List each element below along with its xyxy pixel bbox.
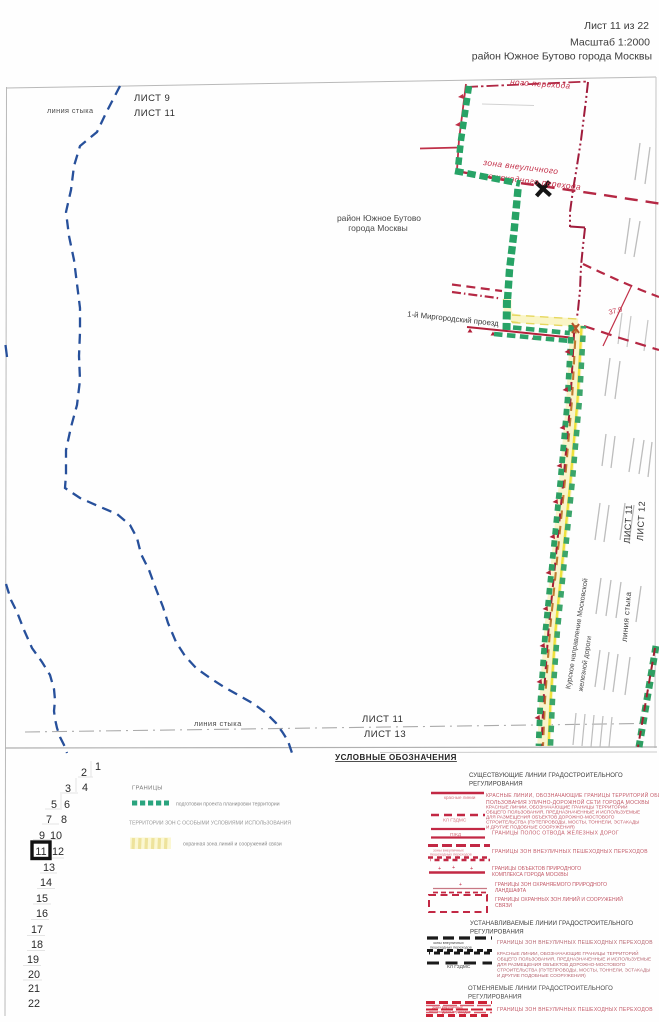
- svg-text:19: 19: [27, 954, 39, 966]
- svg-text:13: 13: [43, 862, 55, 874]
- svg-text:+: +: [459, 882, 462, 888]
- svg-text:9: 9: [39, 830, 45, 842]
- svg-text:4: 4: [82, 782, 88, 794]
- svg-text:ЛАНДШАФТА: ЛАНДШАФТА: [495, 888, 527, 894]
- svg-text:+: +: [438, 866, 441, 872]
- svg-text:КЛ ГЗДМС: КЛ ГЗДМС: [443, 818, 467, 824]
- svg-text:СВЯЗИ: СВЯЗИ: [495, 903, 512, 909]
- svg-text:20: 20: [28, 969, 40, 981]
- svg-text:22: 22: [28, 998, 40, 1010]
- svg-text:КРАСНЫЕ ЛИНИИ, ОБОЗНАЧАЮЩИЕ Г: КРАСНЫЕ ЛИНИИ, ОБОЗНАЧАЮЩИЕ ГРАНИЦЫ ТЕРР…: [486, 803, 628, 810]
- svg-text:ЛИСТ 11: ЛИСТ 11: [362, 714, 403, 725]
- svg-text:5: 5: [51, 799, 57, 811]
- svg-text:УСЛОВНЫЕ ОБОЗНАЧЕНИЯ: УСЛОВНЫЕ ОБОЗНАЧЕНИЯ: [335, 753, 457, 762]
- svg-text:ГРАНИЦЫ ОХРАННЫХ ЗОН ЛИНИЙ И С: ГРАНИЦЫ ОХРАННЫХ ЗОН ЛИНИЙ И СООРУЖЕНИЙ: [495, 895, 623, 903]
- svg-text:ОТМЕНЯЕМЫЕ ЛИНИИ ГРАДОСТРОИТЕ: ОТМЕНЯЕМЫЕ ЛИНИИ ГРАДОСТРОИТЕЛЬНОГО: [468, 986, 613, 992]
- svg-text:16: 16: [36, 908, 48, 920]
- svg-text:1: 1: [95, 761, 101, 773]
- svg-text:И ДРУГИЕ ПОДОБНЫЕ СООРУЖЕНИЯ: И ДРУГИЕ ПОДОБНЫЕ СООРУЖЕНИЯ): [497, 973, 586, 978]
- svg-text:+: +: [452, 865, 455, 871]
- svg-text:ГРАНИЦЫ: ГРАНИЦЫ: [132, 786, 163, 792]
- svg-text:ЛИСТ 13: ЛИСТ 13: [364, 729, 406, 740]
- svg-text:ГРАНИЦЫ ПОЛОС ОТВОДА ЖЕЛЕЗНЫ: ГРАНИЦЫ ПОЛОС ОТВОДА ЖЕЛЕЗНЫХ ДОРОГ: [492, 831, 619, 837]
- svg-text:7: 7: [46, 814, 52, 826]
- svg-text:14: 14: [40, 877, 52, 889]
- svg-text:Лист 11 из 22: Лист 11 из 22: [584, 20, 649, 32]
- svg-text:пешеходных переходов: пешеходных переходов: [430, 853, 472, 857]
- svg-text:17: 17: [31, 924, 43, 936]
- svg-text:3: 3: [65, 783, 71, 795]
- svg-text:СУЩЕСТВУЮЩИЕ ЛИНИИ ГРАДОСТРОИ: СУЩЕСТВУЮЩИЕ ЛИНИИ ГРАДОСТРОИТЕЛЬНОГО: [469, 773, 623, 779]
- svg-text:КРАСНЫЕ ЛИНИИ, ОБОЗНАЧАЮЩИЕ Г: КРАСНЫЕ ЛИНИИ, ОБОЗНАЧАЮЩИЕ ГРАНИЦЫ ТЕРР…: [486, 791, 659, 799]
- svg-text:8: 8: [61, 814, 67, 826]
- svg-text:пешеходных переходов: пешеходных переходов: [430, 946, 472, 950]
- svg-text:15: 15: [36, 893, 48, 905]
- svg-text:6: 6: [64, 799, 70, 811]
- svg-text:зоны внеуличных: зоны внеуличных: [433, 941, 464, 945]
- svg-text:РЕГУЛИРОВАНИЯ: РЕГУЛИРОВАНИЯ: [470, 930, 524, 936]
- svg-text:10: 10: [50, 830, 62, 842]
- svg-text:И ДРУГИЕ ПОДОБНЫЕ СООРУЖЕНИЯ: И ДРУГИЕ ПОДОБНЫЕ СООРУЖЕНИЯ): [486, 825, 575, 830]
- svg-text:КОМПЛЕКСА ГОРОДА МОСКВЫ: КОМПЛЕКСА ГОРОДА МОСКВЫ: [492, 872, 569, 878]
- svg-text:Масштаб 1:2000: Масштаб 1:2000: [570, 37, 650, 49]
- svg-text:линия стыка: линия стыка: [194, 719, 242, 728]
- svg-text:район Южное Бутово города Моск: район Южное Бутово города Москвы: [472, 51, 652, 63]
- svg-text:линия стыка: линия стыка: [47, 106, 94, 115]
- svg-text:СТРОИТЕЛЬСТВА (ПУТЕПРОВОДЫ, М: СТРОИТЕЛЬСТВА (ПУТЕПРОВОДЫ, МОСТЫ, ТОННЕ…: [497, 968, 650, 973]
- svg-text:красные линии: красные линии: [444, 795, 476, 800]
- svg-text:12: 12: [52, 846, 64, 858]
- svg-text:города Москвы: города Москвы: [348, 223, 407, 233]
- svg-text:ГРАНИЦЫ ЗОН ВНЕУЛИЧНЫХ ПЕШЕХОД: ГРАНИЦЫ ЗОН ВНЕУЛИЧНЫХ ПЕШЕХОДНЫХ ПЕРЕХО…: [492, 849, 648, 855]
- svg-text:УСТАНАВЛИВАЕМЫЕ ЛИНИИ ГРАДОС: УСТАНАВЛИВАЕМЫЕ ЛИНИИ ГРАДОСТРОИТЕЛЬНОГО: [470, 921, 633, 927]
- svg-text:ЛИСТ 11: ЛИСТ 11: [134, 108, 175, 119]
- svg-text:ГРАНИЦЫ ЗОН ВНЕУЛИЧНЫХ ПЕШЕХОД: ГРАНИЦЫ ЗОН ВНЕУЛИЧНЫХ ПЕШЕХОДНЫХ ПЕРЕХО…: [497, 940, 653, 946]
- svg-text:РЕГУЛИРОВАНИЯ: РЕГУЛИРОВАНИЯ: [469, 782, 523, 788]
- svg-text:ЛИСТ 12: ЛИСТ 12: [635, 501, 647, 542]
- svg-text:ДЛЯ РАЗМЕЩЕНИЯ ОБЪЕКТОВ ДОРОЖН: ДЛЯ РАЗМЕЩЕНИЯ ОБЪЕКТОВ ДОРОЖНО-МОСТОВОГ…: [497, 962, 626, 967]
- svg-text:район Южное Бутово: район Южное Бутово: [337, 213, 421, 223]
- svg-text:2: 2: [81, 767, 87, 779]
- svg-text:РЕГУЛИРОВАНИЯ: РЕГУЛИРОВАНИЯ: [468, 995, 522, 1001]
- svg-text:КЛ ГЗДМС: КЛ ГЗДМС: [447, 964, 471, 970]
- svg-text:11: 11: [35, 846, 46, 858]
- svg-text:охранная зона линий и соор: охранная зона линий и сооружений связи: [183, 841, 282, 848]
- svg-text:21: 21: [28, 983, 40, 995]
- svg-text:18: 18: [31, 939, 43, 951]
- svg-text:ЛИСТ 9: ЛИСТ 9: [134, 93, 170, 104]
- svg-text:ГРАНИЦЫ ЗОН ВНЕУЛИЧНЫХ ПЕШЕХОД: ГРАНИЦЫ ЗОН ВНЕУЛИЧНЫХ ПЕШЕХОДНЫХ ПЕРЕХО…: [497, 1007, 653, 1013]
- svg-text:ТЕРРИТОРИИ ЗОН С ОСОБЫМИ УСЛОВ: ТЕРРИТОРИИ ЗОН С ОСОБЫМИ УСЛОВИЯМИ ИСПОЛ…: [129, 821, 291, 827]
- svg-text:ОБЩЕГО ПОЛЬЗОВАНИЯ, ПРЕДНАЗНАЧ: ОБЩЕГО ПОЛЬЗОВАНИЯ, ПРЕДНАЗНАЧЕННЫЕ И ИС…: [497, 957, 651, 962]
- svg-text:ЛИСТ 11: ЛИСТ 11: [622, 504, 634, 544]
- svg-text:+: +: [470, 866, 473, 872]
- svg-text:подготовки проекта планировки: подготовки проекта планировки территории: [176, 802, 280, 808]
- svg-text:КРАСНЫЕ ЛИНИИ, ОБОЗНАЧАЮЩИЕ Г: КРАСНЫЕ ЛИНИИ, ОБОЗНАЧАЮЩИЕ ГРАНИЦЫ ТЕРР…: [497, 949, 639, 956]
